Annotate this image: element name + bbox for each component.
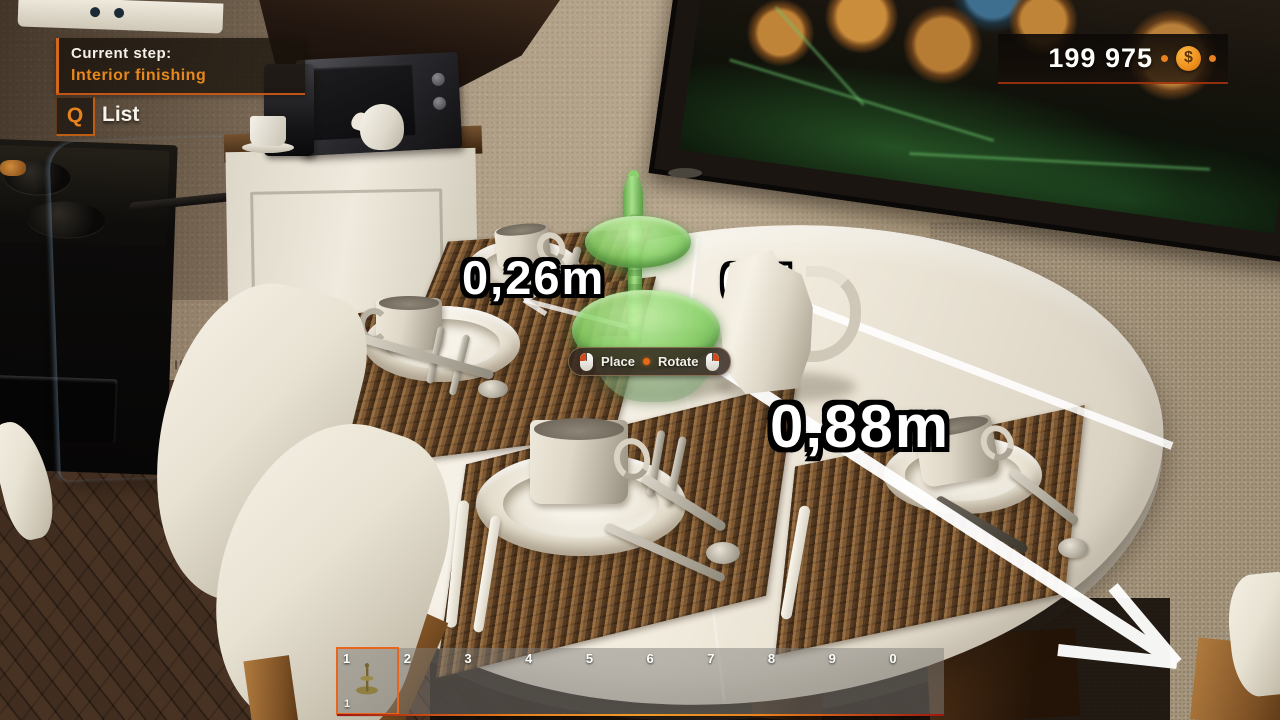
hotbar-slot-5[interactable]: 5 <box>580 648 641 714</box>
tiered-cake-stand-icon <box>354 659 380 706</box>
hotbar-slot-8[interactable]: 8 <box>762 648 823 714</box>
current-step-panel: Current step: Interior finishing <box>56 38 305 93</box>
money-panel: 199 975 $ <box>998 34 1228 82</box>
hotbar-slot-1[interactable]: 1 1 <box>337 648 398 714</box>
money-amount: 199 975 <box>1048 43 1153 74</box>
list-hint-label: List <box>102 103 139 127</box>
place-button[interactable]: Place <box>601 354 635 369</box>
hotbar-slot-9[interactable]: 9 <box>823 648 884 714</box>
slot-number: 7 <box>707 651 714 666</box>
rotate-button[interactable]: Rotate <box>658 354 698 369</box>
slot-number: 2 <box>404 651 411 666</box>
hotbar-slot-6[interactable]: 6 <box>641 648 702 714</box>
placement-action-bar: Place Rotate <box>568 347 731 376</box>
hotbar: 1 1 2 3 4 5 6 7 8 9 0 <box>337 648 944 714</box>
slot-number: 3 <box>464 651 471 666</box>
slot-number: 0 <box>889 651 896 666</box>
hotbar-slot-4[interactable]: 4 <box>519 648 580 714</box>
hotbar-slot-7[interactable]: 7 <box>701 648 762 714</box>
mouse-left-click-icon <box>580 353 593 371</box>
dollar-coin-icon: $ <box>1176 46 1201 71</box>
slot-number: 1 <box>343 651 350 666</box>
dot-icon <box>1209 55 1216 62</box>
dot-icon <box>1161 55 1168 62</box>
game-viewport: 0,5 0,26m 0,88m Place Rotate Current ste… <box>0 0 1280 720</box>
mouse-right-click-icon <box>706 353 719 371</box>
separator-dot-icon <box>643 358 650 365</box>
slot-number: 6 <box>647 651 654 666</box>
hotbar-slot-3[interactable]: 3 <box>458 648 519 714</box>
q-key-icon[interactable]: Q <box>56 97 95 136</box>
slot-number: 9 <box>829 651 836 666</box>
hotbar-slot-0[interactable]: 0 <box>883 648 944 714</box>
measurement-label-diagonal: 0,88m <box>770 392 950 461</box>
slot-number: 5 <box>586 651 593 666</box>
measurement-label-left: 0,26m <box>462 250 605 305</box>
current-step-value: Interior finishing <box>71 67 293 85</box>
item-count: 1 <box>344 698 350 710</box>
hotbar-slot-2[interactable]: 2 <box>398 648 459 714</box>
slot-number: 8 <box>768 651 775 666</box>
current-step-title: Current step: <box>71 45 293 62</box>
slot-number: 4 <box>525 651 532 666</box>
